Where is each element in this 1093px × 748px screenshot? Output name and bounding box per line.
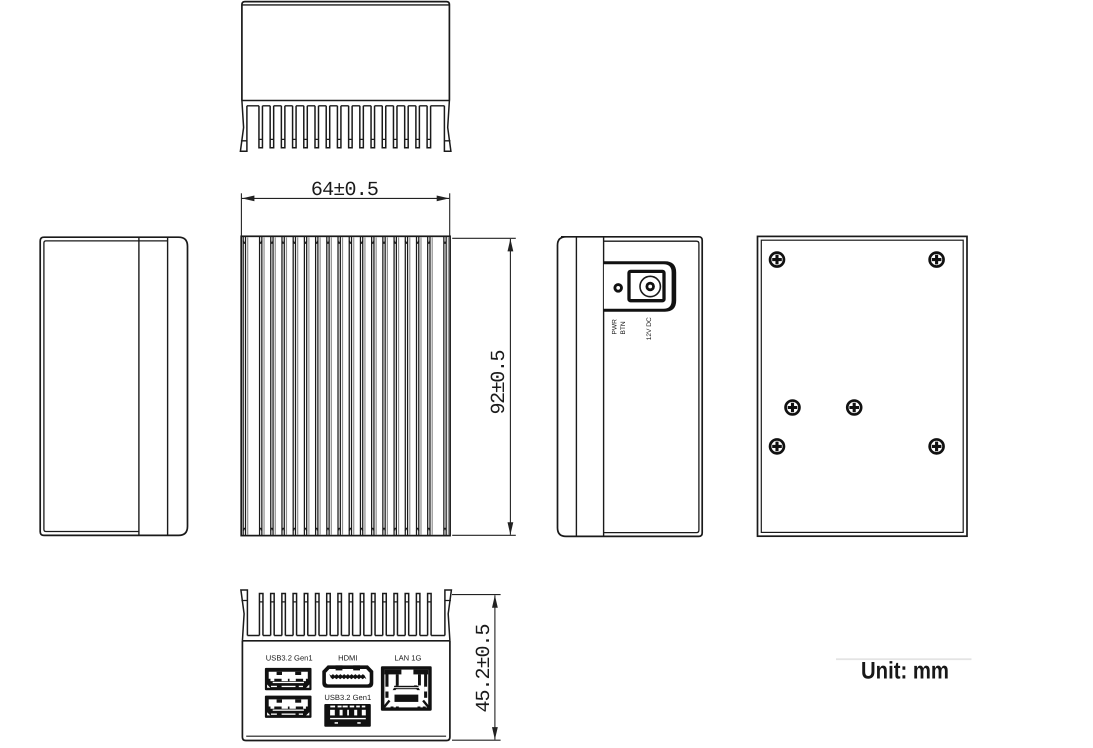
- svg-text:12V DC: 12V DC: [646, 317, 653, 340]
- svg-text:64±0.5: 64±0.5: [311, 179, 378, 202]
- svg-text:USB3.2 Gen1: USB3.2 Gen1: [324, 693, 371, 702]
- svg-text:BTN: BTN: [620, 321, 627, 334]
- svg-text:HDMI: HDMI: [338, 653, 357, 662]
- svg-text:PWR: PWR: [612, 319, 619, 335]
- svg-text:USB3.2 Gen1: USB3.2 Gen1: [266, 653, 313, 662]
- svg-text:LAN 1G: LAN 1G: [394, 653, 421, 662]
- svg-text:92±0.5: 92±0.5: [488, 350, 511, 414]
- svg-text:45.2±0.5: 45.2±0.5: [473, 624, 496, 712]
- svg-text:Unit: mm: Unit: mm: [861, 657, 949, 684]
